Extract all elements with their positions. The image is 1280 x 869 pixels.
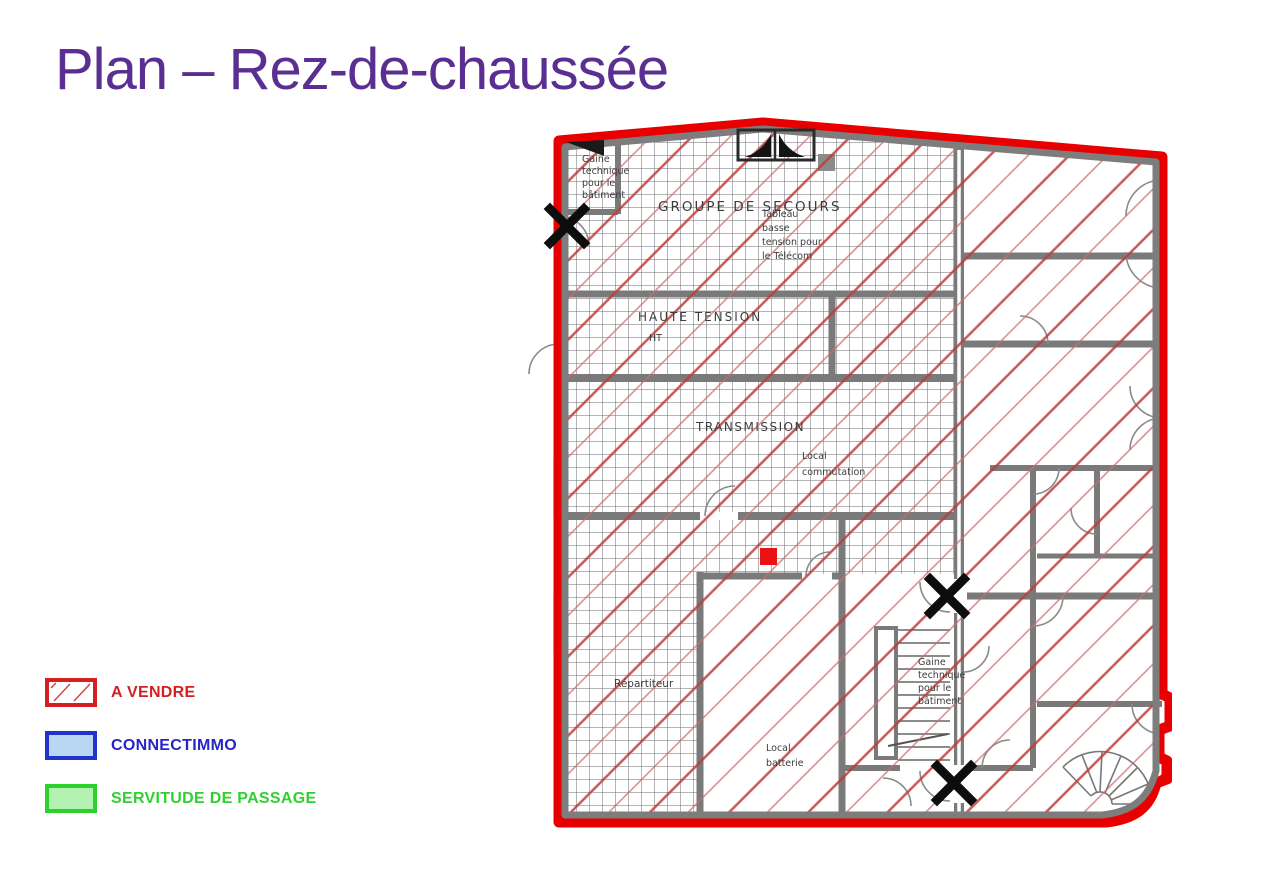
label-repartiteur: Répartiteur <box>614 678 674 690</box>
svg-text:technique: technique <box>582 166 630 177</box>
connectimmo-swatch-icon <box>45 731 97 760</box>
svg-text:pour le: pour le <box>582 178 615 189</box>
legend-item-connectimmo: CONNECTIMMO <box>45 731 316 760</box>
page-title: Plan – Rez-de-chaussée <box>55 36 668 103</box>
svg-text:Local: Local <box>802 451 827 462</box>
label-transmission: TRANSMISSION <box>695 420 805 434</box>
legend-label-connectimmo: CONNECTIMMO <box>111 737 237 755</box>
svg-text:Local: Local <box>766 743 791 754</box>
svg-text:bâtiment: bâtiment <box>918 696 961 707</box>
svg-text:Gaine: Gaine <box>918 657 946 668</box>
legend-label-servitude: SERVITUDE DE PASSAGE <box>111 790 316 808</box>
legend-item-a-vendre: A VENDRE <box>45 678 316 707</box>
svg-text:le Télécom: le Télécom <box>762 251 812 262</box>
svg-text:Tableau: Tableau <box>761 209 798 220</box>
svg-text:technique: technique <box>918 670 966 681</box>
label-haute-tension: HAUTE TENSION <box>638 310 762 324</box>
legend-item-servitude: SERVITUDE DE PASSAGE <box>45 784 316 813</box>
floor-plan: Gaine technique pour le bâtiment GROUPE … <box>525 116 1172 838</box>
label-ht: HT <box>649 333 662 344</box>
svg-text:basse: basse <box>762 223 790 234</box>
vendre-swatch-icon <box>45 678 97 707</box>
servitude-swatch-icon <box>45 784 97 813</box>
svg-text:tension pour: tension pour <box>762 237 822 248</box>
svg-text:commutation: commutation <box>802 467 865 478</box>
svg-text:bâtiment: bâtiment <box>582 190 625 201</box>
floor-plan-drawing: Gaine technique pour le bâtiment GROUPE … <box>525 116 1172 838</box>
legend-label-a-vendre: A VENDRE <box>111 684 196 702</box>
red-square-marker <box>760 548 777 565</box>
svg-text:pour le: pour le <box>918 683 951 694</box>
svg-text:batterie: batterie <box>766 758 804 769</box>
svg-text:Gaine: Gaine <box>582 154 610 165</box>
legend: A VENDRE CONNECTIMMO SERVITUDE DE PASSAG… <box>45 678 316 837</box>
label-groupe-secours: GROUPE DE SECOURS <box>658 199 842 215</box>
